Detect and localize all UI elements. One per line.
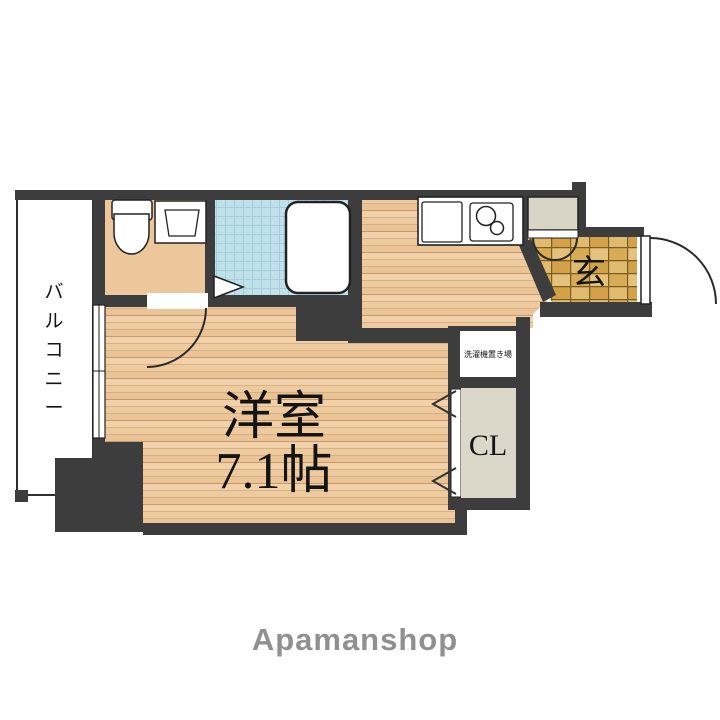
main-room-name-label: 洋室: [222, 389, 326, 446]
kitchen-sink-icon: [422, 202, 462, 242]
toilet-door-opening: [147, 293, 208, 309]
floor-plan: 洗濯機置き場 洋室 7.1帖 玄 CL バルコニー Apamanshop: [0, 0, 720, 720]
washbasin-icon: [155, 201, 206, 243]
closet-label: CL: [469, 429, 507, 462]
balcony-label: バルコニー: [44, 282, 63, 419]
main-room-size-label: 7.1帖: [215, 443, 332, 500]
shoe-cabinet-icon: [528, 197, 578, 230]
kitchen-bottom-wall: [348, 328, 462, 343]
outer-wall-bottom: [143, 523, 467, 535]
floorplan-page: 洗濯機置き場 洋室 7.1帖 玄 CL バルコニー Apamanshop: [0, 0, 720, 720]
entrance-top-wall: [580, 227, 644, 237]
balcony-corner-post: [15, 490, 28, 502]
closet-door-panel: [451, 389, 461, 497]
toilet-icon: [112, 200, 152, 254]
laundry-label: 洗濯機置き場: [464, 349, 512, 359]
wall-bottom-right-connector: [455, 503, 467, 533]
kitchen-counter: [418, 197, 523, 245]
stove-burners-icon: [470, 203, 513, 241]
shoe-cabinet-front: [528, 230, 578, 238]
brand-logo-text: Apamanshop: [252, 622, 458, 657]
bathtub-icon: [286, 202, 350, 293]
balcony-wall-upper: [93, 199, 105, 307]
entrance-label: 玄: [572, 254, 606, 292]
entrance-bottom-wall: [540, 302, 652, 317]
balcony-window-icon: [93, 305, 105, 438]
